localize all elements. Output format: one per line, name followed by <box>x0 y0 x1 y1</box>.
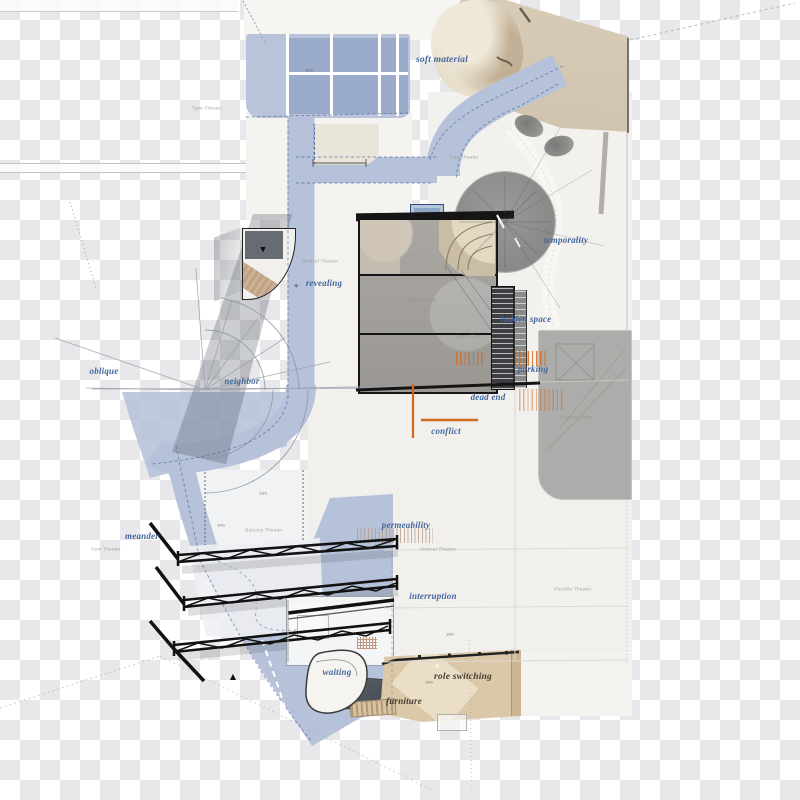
label-temporality: temporality <box>544 235 588 245</box>
zone-flexible-theater: Flexible Theater <box>555 587 592 592</box>
scale-30m: 30m <box>305 68 313 73</box>
zone-vertical-theater-lower: Vertical Theater <box>420 547 456 552</box>
scale-10m-c: 10m <box>446 632 454 637</box>
scale-10m-d: 10m <box>425 680 433 685</box>
scale-10m-a: 10m <box>259 491 267 496</box>
zone-balcony-theater: Balcony Theater <box>245 528 282 533</box>
label-revealing: revealing <box>306 278 342 288</box>
marker-cross: ✕ <box>314 692 319 698</box>
zone-upper-floor: Upper Floor <box>455 334 482 339</box>
label-permeability: permeability <box>382 520 430 530</box>
zone-type-theater: Type Theater <box>192 106 222 111</box>
label-waiting: waiting <box>323 667 352 677</box>
marker-triangle-up: ▲ <box>230 673 236 681</box>
label-interruption: interruption <box>409 591 456 601</box>
zone-outdoor-plaza: Outdoor Plaza <box>560 415 593 420</box>
label-layer: soft materialtemporalityrevealinghidden … <box>0 0 800 800</box>
marker-figure-dot: ● <box>435 665 439 670</box>
label-dead-end: dead end <box>471 392 506 402</box>
marker-triangle-down: ▼ <box>260 247 265 254</box>
label-parking: parking <box>518 364 548 374</box>
scale-10m-b: 10m <box>217 523 225 528</box>
label-neighbor: neighbor <box>224 376 259 386</box>
label-oblique: oblique <box>90 366 119 376</box>
label-furniture: furniture <box>386 696 422 706</box>
marker-asterisk: ✳ <box>293 284 298 290</box>
label-hidden-space: hidden space <box>501 314 552 324</box>
label-role-switching: role switching <box>434 672 492 682</box>
zone-tree-theater: Tree Theater <box>449 155 478 160</box>
zone-vertical-theater-upper: Vertical Theater <box>302 259 338 264</box>
zone-gaming-zone: Gaming Zone <box>406 298 437 303</box>
site-plan-canvas: soft materialtemporalityrevealinghidden … <box>0 0 800 800</box>
zone-gym-theater: Gym Theater <box>91 547 120 552</box>
label-conflict: conflict <box>431 426 461 436</box>
label-soft-material: soft material <box>416 55 468 65</box>
label-meander: meander <box>125 531 159 541</box>
